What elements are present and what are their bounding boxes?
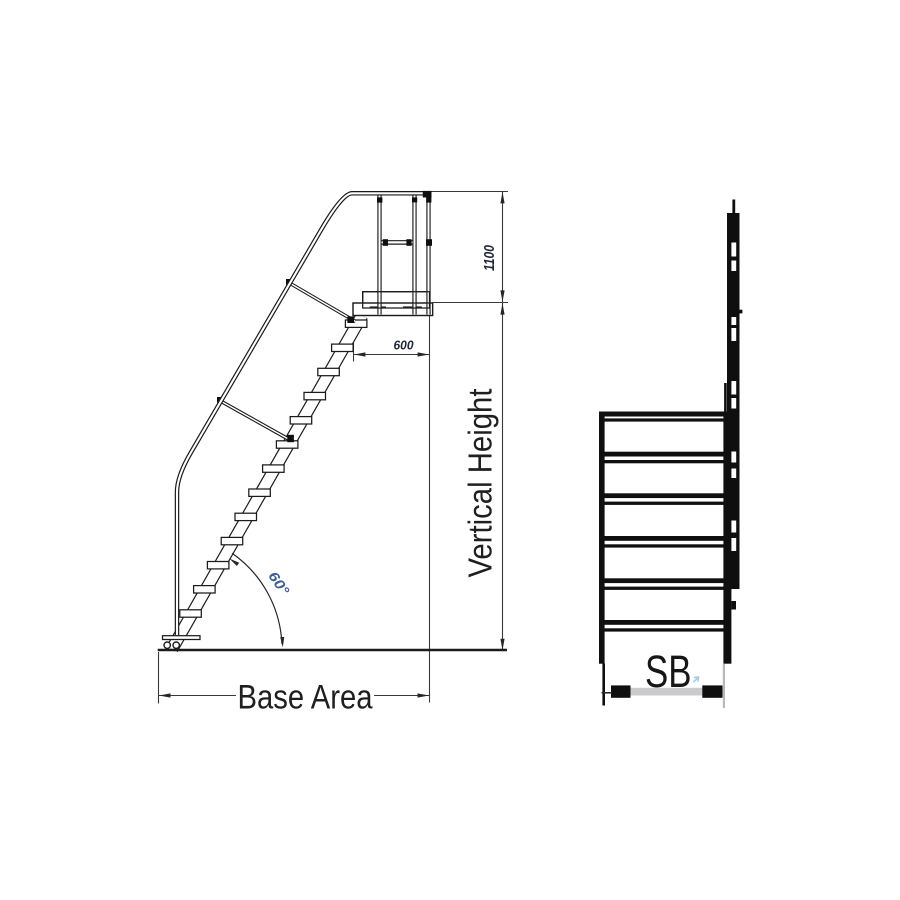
- svg-text:Base Area: Base Area: [238, 679, 373, 717]
- svg-text:1100: 1100: [481, 244, 498, 271]
- svg-text:Vertical Height: Vertical Height: [462, 389, 499, 578]
- svg-text:SB: SB: [645, 646, 692, 697]
- svg-text:600: 600: [394, 339, 414, 353]
